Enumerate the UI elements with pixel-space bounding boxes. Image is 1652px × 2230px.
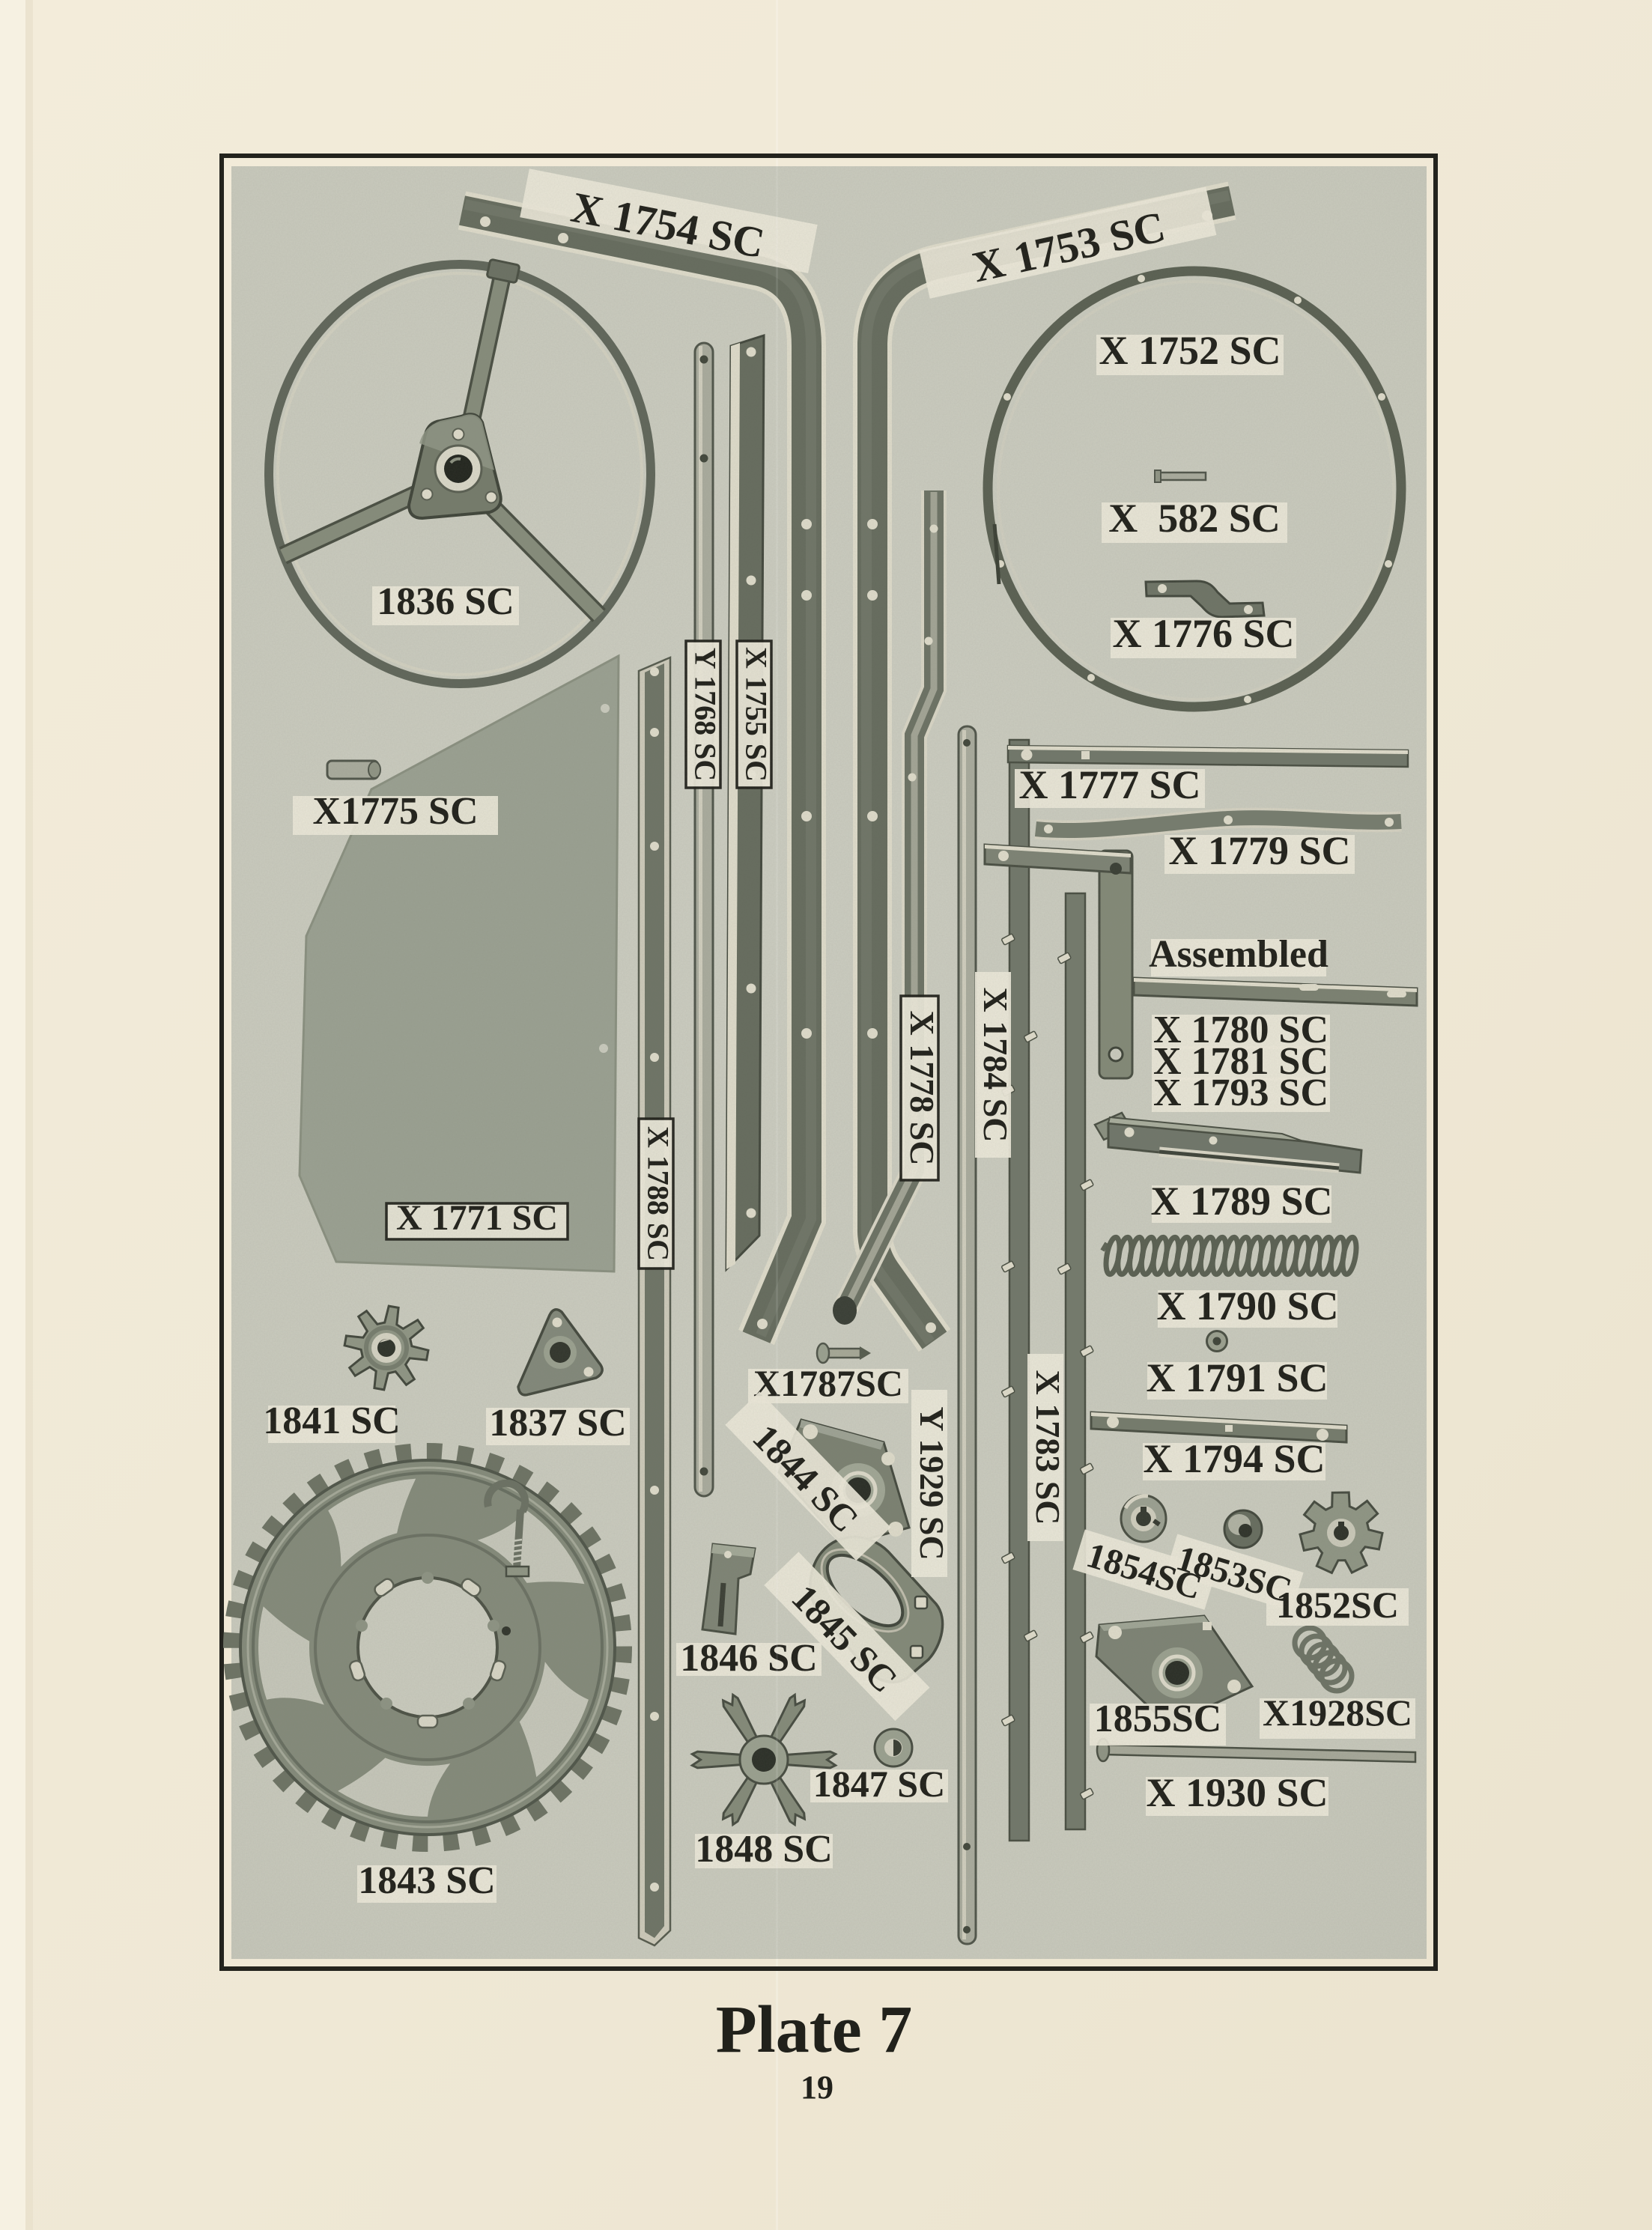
svg-text:19: 19 [801,2069,833,2106]
svg-text:Plate 7: Plate 7 [716,1993,912,2067]
